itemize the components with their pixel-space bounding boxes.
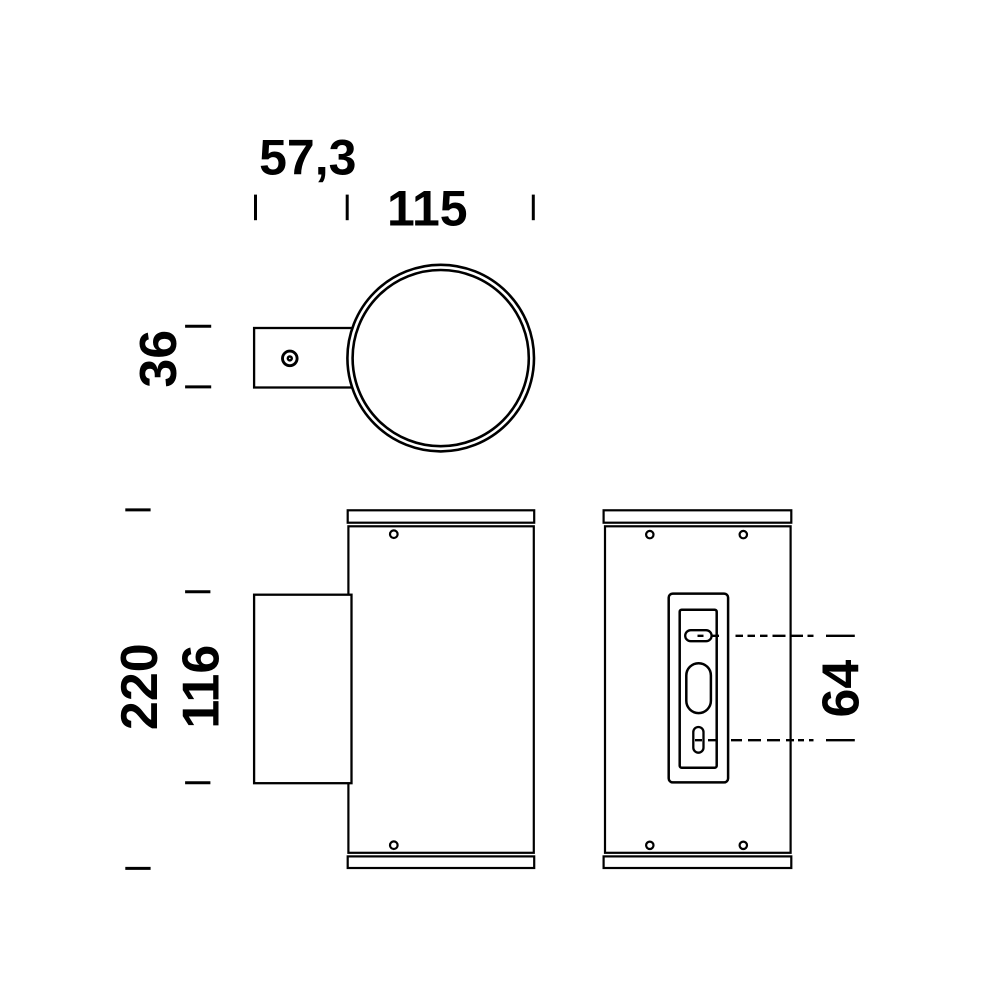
svg-text:64: 64: [812, 660, 870, 718]
svg-text:115: 115: [387, 181, 468, 237]
svg-text:36: 36: [130, 330, 188, 388]
svg-text:116: 116: [172, 645, 230, 729]
svg-text:57,3: 57,3: [259, 129, 356, 185]
svg-text:220: 220: [111, 643, 169, 730]
